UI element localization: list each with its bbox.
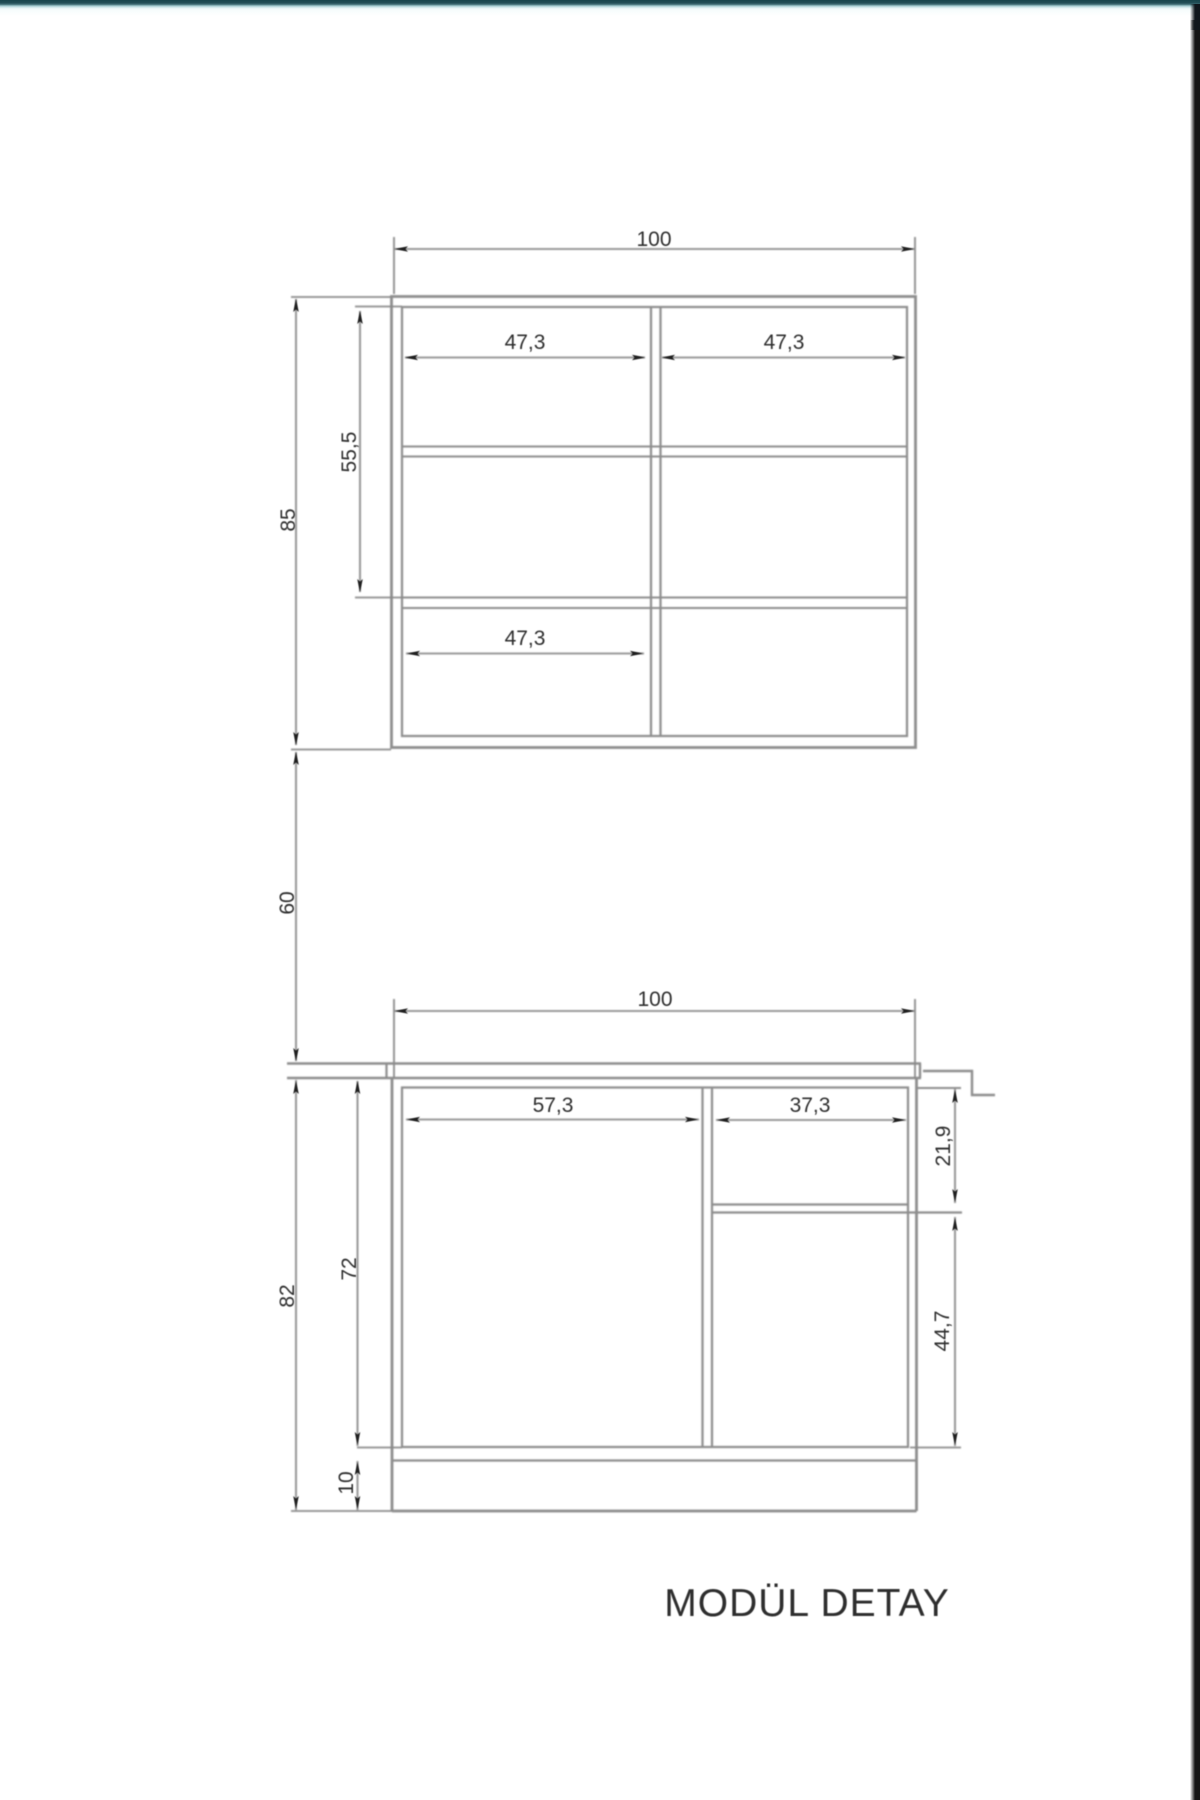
svg-text:MODÜL DETAY: MODÜL DETAY [664, 1582, 949, 1625]
svg-text:21,9: 21,9 [932, 1126, 955, 1167]
svg-text:47,3: 47,3 [764, 331, 805, 354]
svg-text:37,3: 37,3 [790, 1094, 831, 1117]
svg-text:57,3: 57,3 [533, 1094, 574, 1117]
svg-text:82: 82 [276, 1284, 299, 1307]
svg-text:60: 60 [276, 891, 299, 914]
svg-text:100: 100 [637, 988, 672, 1011]
svg-text:55,5: 55,5 [338, 432, 361, 473]
svg-text:44,7: 44,7 [931, 1311, 954, 1352]
svg-text:10: 10 [335, 1471, 358, 1494]
svg-text:47,3: 47,3 [505, 627, 546, 650]
svg-text:100: 100 [636, 228, 671, 251]
svg-text:85: 85 [277, 508, 300, 531]
svg-text:72: 72 [338, 1257, 361, 1280]
svg-text:47,3: 47,3 [505, 331, 546, 354]
